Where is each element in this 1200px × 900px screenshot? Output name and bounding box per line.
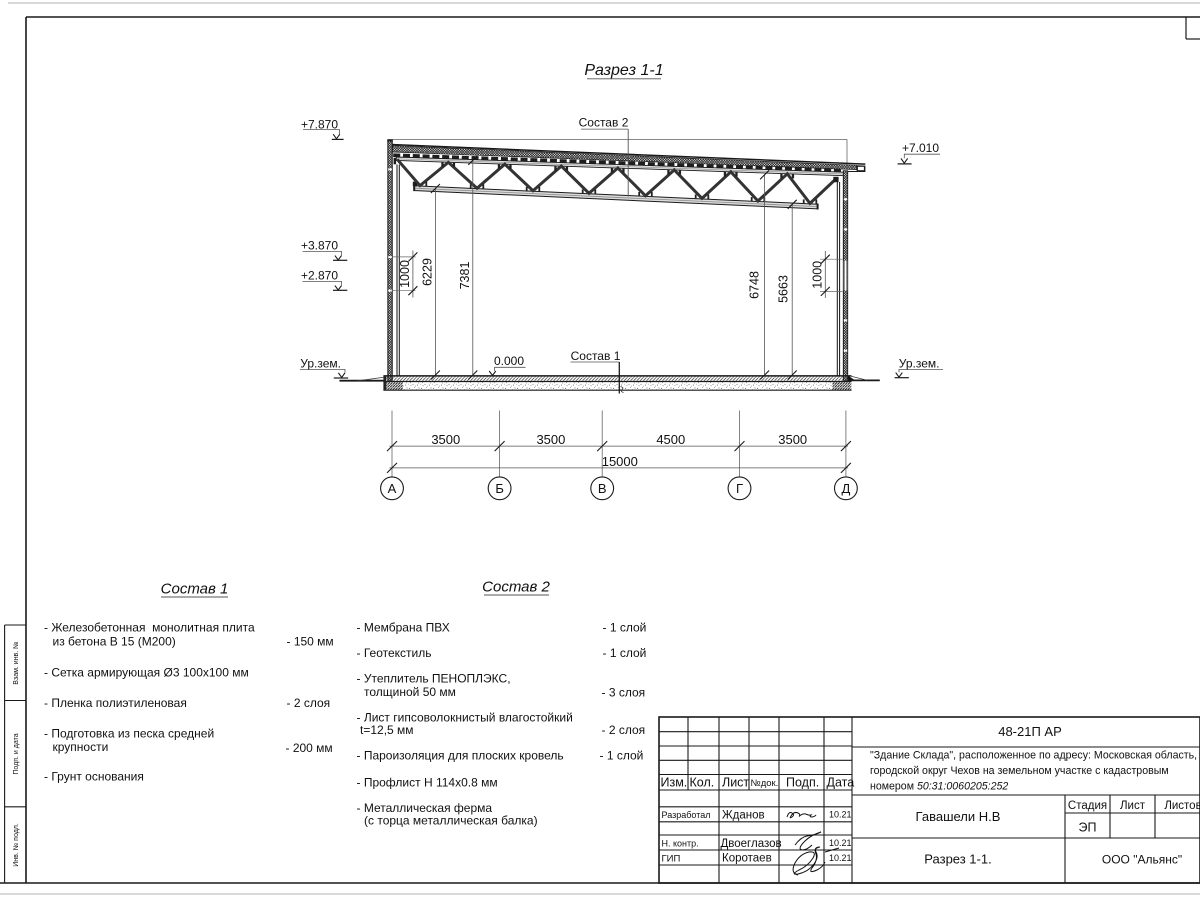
svg-text:Инв. № подл.: Инв. № подл. xyxy=(13,823,20,867)
svg-text:Двоеглазов: Двоеглазов xyxy=(721,838,782,850)
svg-text:- Мембрана ПВХ: - Мембрана ПВХ xyxy=(357,621,450,635)
svg-text:+2.870: +2.870 xyxy=(301,269,338,283)
svg-text:Лист: Лист xyxy=(1120,800,1146,812)
svg-text:- 1 слой: - 1 слой xyxy=(603,621,647,635)
svg-text:1000: 1000 xyxy=(811,261,825,289)
svg-text:(с торца металлическая балка): (с торца металлическая балка) xyxy=(364,814,538,828)
svg-text:Кол.: Кол. xyxy=(690,776,715,790)
svg-text:Д: Д xyxy=(841,481,850,496)
svg-text:- Пароизоляция для плоских кро: - Пароизоляция для плоских кровель xyxy=(357,749,564,763)
svg-text:- 2 слоя: - 2 слоя xyxy=(602,723,646,737)
svg-text:0.000: 0.000 xyxy=(494,354,524,368)
svg-text:- Утеплитель ПЕНОПЛЭКС,: - Утеплитель ПЕНОПЛЭКС, xyxy=(357,672,511,686)
svg-text:48-21П АР: 48-21П АР xyxy=(998,724,1062,739)
svg-text:Разработал: Разработал xyxy=(662,810,711,820)
svg-text:Разрез 1-1: Разрез 1-1 xyxy=(584,62,663,79)
svg-text:- 1 слой: - 1 слой xyxy=(603,646,647,660)
svg-text:из бетона В 15 (М200): из бетона В 15 (М200) xyxy=(53,635,176,649)
svg-text:4500: 4500 xyxy=(656,432,685,447)
svg-text:Подп. и дата: Подп. и дата xyxy=(13,733,20,774)
svg-text:ГИП: ГИП xyxy=(662,854,681,865)
svg-text:Листов: Листов xyxy=(1164,800,1200,812)
svg-text:- Грунт основания: - Грунт основания xyxy=(44,770,144,784)
svg-text:Взам. инв. №: Взам. инв. № xyxy=(13,641,20,684)
svg-text:- Геотекстиль: - Геотекстиль xyxy=(357,646,432,660)
svg-text:15000: 15000 xyxy=(602,454,638,469)
svg-text:"Здание Склада", расположенное: "Здание Склада", расположенное по адресу… xyxy=(870,750,1197,762)
svg-text:10.21: 10.21 xyxy=(829,810,852,820)
svg-text:- Сетка армирующая Ø3 100х100: - Сетка армирующая Ø3 100х100 мм xyxy=(44,666,249,680)
svg-text:3500: 3500 xyxy=(778,432,807,447)
svg-text:№док.: №док. xyxy=(751,778,779,789)
svg-text:5663: 5663 xyxy=(777,275,791,303)
svg-text:толщиной 50 мм: толщиной 50 мм xyxy=(364,685,456,699)
svg-text:Коротаев: Коротаев xyxy=(722,853,772,865)
svg-text:- 1 слой: - 1 слой xyxy=(600,749,644,763)
svg-text:3500: 3500 xyxy=(536,432,565,447)
svg-text:- Подготовка из песка средней: - Подготовка из песка средней xyxy=(44,727,214,741)
svg-text:А: А xyxy=(388,481,397,496)
svg-text:t=12,5 мм: t=12,5 мм xyxy=(360,723,414,737)
svg-text:3500: 3500 xyxy=(431,432,460,447)
svg-text:10.21: 10.21 xyxy=(829,838,852,848)
svg-text:городской округ Чехов на земел: городской округ Чехов на земельном участ… xyxy=(870,765,1169,777)
svg-text:Состав 1: Состав 1 xyxy=(571,349,621,363)
svg-text:крупности: крупности xyxy=(53,740,109,754)
svg-text:Стадия: Стадия xyxy=(1068,800,1107,812)
svg-text:Дата: Дата xyxy=(827,776,855,790)
svg-text:Лист: Лист xyxy=(722,776,749,790)
svg-text:10.21: 10.21 xyxy=(829,853,852,863)
svg-text:В: В xyxy=(598,481,607,496)
svg-text:Г: Г xyxy=(736,481,743,496)
svg-text:Н. контр.: Н. контр. xyxy=(662,839,699,849)
svg-text:6229: 6229 xyxy=(421,258,435,286)
svg-text:ЭП: ЭП xyxy=(1079,821,1097,835)
svg-text:Состав 2: Состав 2 xyxy=(579,116,629,130)
svg-text:- 2 слоя: - 2 слоя xyxy=(287,696,331,710)
svg-text:Ур.зем.: Ур.зем. xyxy=(899,356,940,370)
svg-text:7381: 7381 xyxy=(458,262,472,290)
svg-text:- 150 мм: - 150 мм xyxy=(287,635,334,649)
svg-text:- Железобетонная монолитная п: - Железобетонная монолитная плита xyxy=(44,621,255,635)
svg-text:номером 50:31:0060205:252: номером 50:31:0060205:252 xyxy=(870,781,1008,793)
svg-text:Состав 1: Состав 1 xyxy=(161,581,229,598)
svg-text:Разрез 1-1.: Разрез 1-1. xyxy=(924,852,991,867)
svg-text:+7.010: +7.010 xyxy=(902,141,939,155)
svg-text:Б: Б xyxy=(495,481,504,496)
svg-text:+7.870: +7.870 xyxy=(301,117,338,131)
svg-text:- Профлист Н 114х0.8 мм: - Профлист Н 114х0.8 мм xyxy=(357,776,498,790)
svg-text:Подп.: Подп. xyxy=(786,776,819,790)
svg-text:- 3 слоя: - 3 слоя xyxy=(602,686,646,700)
svg-text:Состав 2: Состав 2 xyxy=(482,579,550,596)
svg-text:1000: 1000 xyxy=(398,260,412,288)
svg-text:- 200 мм: - 200 мм xyxy=(286,741,333,755)
svg-text:ООО "Альянс": ООО "Альянс" xyxy=(1102,853,1182,867)
svg-text:+3.870: +3.870 xyxy=(301,239,338,253)
svg-text:Гавашели Н.В: Гавашели Н.В xyxy=(916,809,1001,824)
svg-text:6748: 6748 xyxy=(748,271,762,299)
svg-text:Изм.: Изм. xyxy=(661,776,688,790)
svg-text:Ур.зем.: Ур.зем. xyxy=(300,356,341,370)
svg-text:Жданов: Жданов xyxy=(722,810,765,822)
svg-text:- Пленка полиэтиленовая: - Пленка полиэтиленовая xyxy=(44,696,187,710)
